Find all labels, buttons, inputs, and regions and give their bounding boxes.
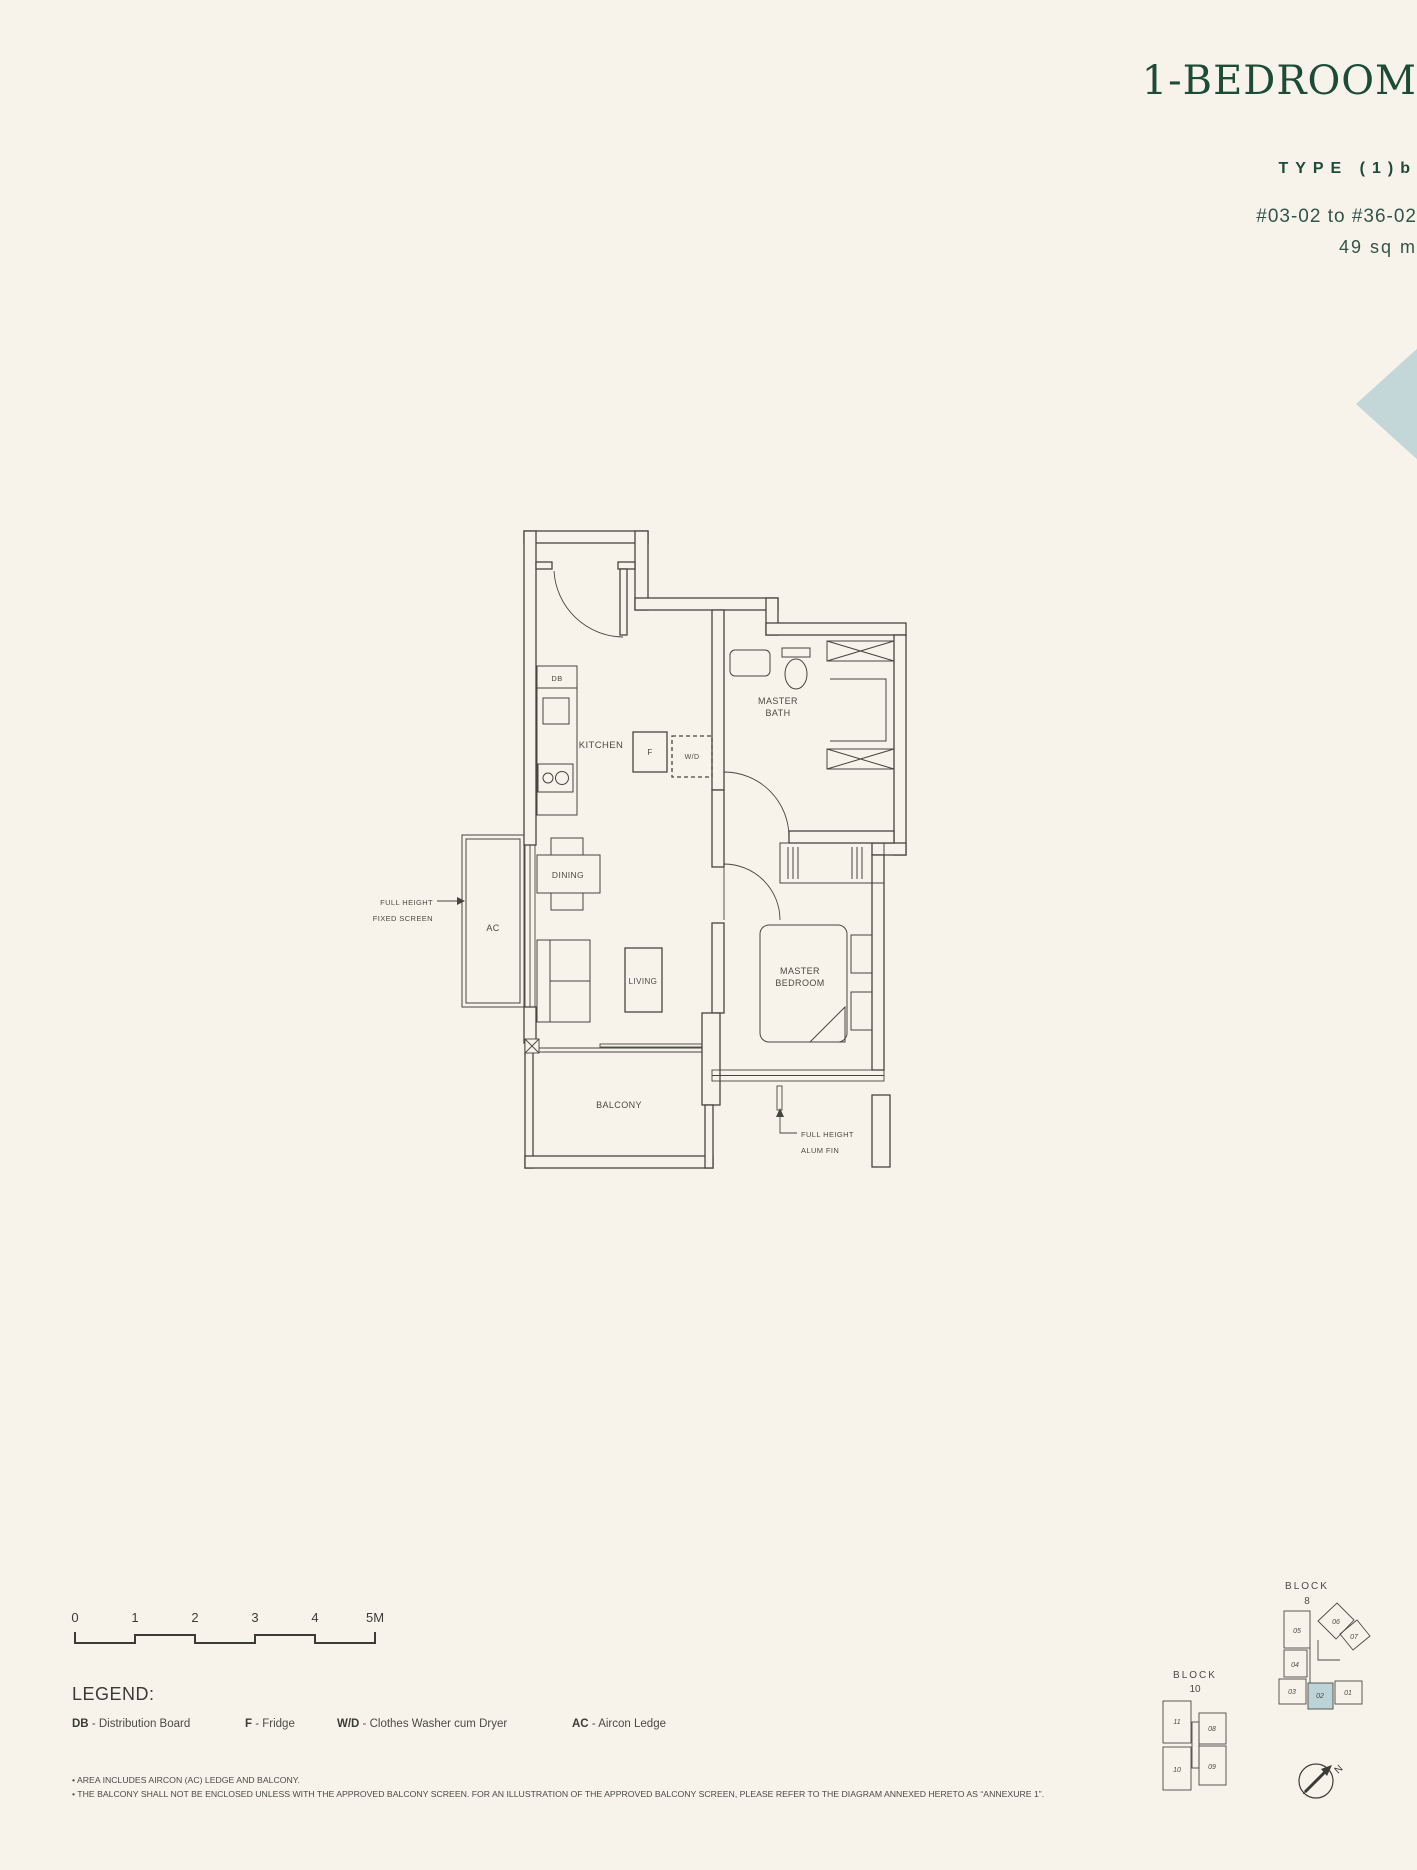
- block8-unit-07: 07: [1350, 1634, 1359, 1641]
- alum-fin: [777, 1086, 782, 1110]
- legend-item-db: DB - Distribution Board: [72, 1718, 190, 1730]
- label-fixed-screen-2: FIXED SCREEN: [373, 914, 433, 923]
- label-dining: DINING: [552, 870, 584, 880]
- block8-unit-06: 06: [1332, 1619, 1340, 1626]
- floor-plan-labels: DB KITCHEN F W/D MASTER BATH DINING AC L…: [373, 674, 854, 1155]
- scale-2: 2: [191, 1610, 198, 1625]
- label-living: LIVING: [629, 977, 658, 986]
- block10-label: BLOCK: [1173, 1670, 1217, 1681]
- north-label: N: [1333, 1763, 1346, 1776]
- label-fixed-screen-1: FULL HEIGHT: [380, 898, 433, 907]
- floorplan-page: 1-BEDROOM TYPE (1)b #03-02 to #36-02 49 …: [0, 0, 1417, 1870]
- legend-heading: LEGEND:: [72, 1684, 155, 1705]
- wardrobe: [780, 843, 884, 883]
- scale-1: 1: [131, 1610, 138, 1625]
- footnote-balcony: • THE BALCONY SHALL NOT BE ENCLOSED UNLE…: [72, 1789, 1044, 1799]
- label-master-bath-1: MASTER: [758, 696, 798, 706]
- sofa: [537, 940, 590, 1022]
- legend-abbr-ac: AC: [572, 1718, 589, 1730]
- legend-abbr-db: DB: [72, 1718, 89, 1730]
- floor-plan: [437, 531, 906, 1168]
- block10-unit-08: 08: [1208, 1726, 1216, 1733]
- master-bath-fixtures: [730, 641, 894, 769]
- block8-unit-03: 03: [1288, 1689, 1296, 1696]
- scale-3: 3: [251, 1610, 258, 1625]
- label-alum-fin-1: FULL HEIGHT: [801, 1130, 854, 1139]
- plan-artwork: DB KITCHEN F W/D MASTER BATH DINING AC L…: [0, 0, 1417, 1870]
- keyplan-block10: BLOCK 10 11 08 09 10: [1163, 1670, 1226, 1790]
- north-arrow-icon: N: [1299, 1763, 1345, 1798]
- legend-abbr-wd: W/D: [337, 1718, 359, 1730]
- label-fridge: F: [647, 748, 652, 757]
- label-ac: AC: [486, 923, 499, 933]
- label-wd: W/D: [685, 754, 700, 761]
- legend-desc-ac: - Aircon Ledge: [589, 1718, 666, 1730]
- legend-desc-wd: - Clothes Washer cum Dryer: [359, 1718, 507, 1730]
- label-balcony: BALCONY: [596, 1100, 642, 1110]
- block10-unit-11: 11: [1173, 1719, 1180, 1726]
- scale-5m: 5M: [366, 1610, 384, 1625]
- footnote-area: • AREA INCLUDES AIRCON (AC) LEDGE AND BA…: [72, 1775, 300, 1785]
- legend-item-wd: W/D - Clothes Washer cum Dryer: [337, 1718, 507, 1730]
- label-db: DB: [551, 674, 562, 683]
- bedroom-window: [712, 1070, 884, 1081]
- alum-fin-leader: [776, 1108, 797, 1133]
- block8-number: 8: [1304, 1596, 1310, 1607]
- block10-unit-10: 10: [1173, 1767, 1181, 1774]
- bath-door: [724, 772, 789, 837]
- entry-door: [536, 562, 635, 637]
- block8-label: BLOCK: [1285, 1581, 1329, 1592]
- legend-desc-fridge: - Fridge: [252, 1718, 295, 1730]
- block10-unit-09: 09: [1208, 1764, 1216, 1771]
- scale-bar: 0 1 2 3 4 5M: [71, 1610, 384, 1643]
- fixed-screen-leader: [437, 897, 465, 905]
- block8-unit-01: 01: [1344, 1690, 1352, 1697]
- scale-0: 0: [71, 1610, 78, 1625]
- block8-unit-02: 02: [1316, 1693, 1324, 1700]
- walls: [524, 531, 906, 1168]
- keyplan-block8: BLOCK 8 05 06 07 04 03 02 01: [1279, 1581, 1370, 1709]
- kitchen-counter: [537, 666, 577, 815]
- dining-window: [525, 845, 535, 1007]
- legend-item-ac: AC - Aircon Ledge: [572, 1718, 666, 1730]
- bedroom-door: [724, 864, 780, 920]
- block8-unit-04: 04: [1291, 1662, 1299, 1669]
- legend-desc-db: - Distribution Board: [89, 1718, 191, 1730]
- legend-item-fridge: F - Fridge: [245, 1718, 295, 1730]
- corner-diamond-decoration: [1356, 346, 1417, 462]
- scale-4: 4: [311, 1610, 318, 1625]
- label-kitchen: KITCHEN: [579, 740, 624, 751]
- label-master-bedroom-2: BEDROOM: [775, 978, 824, 988]
- label-master-bath-2: BATH: [766, 708, 791, 718]
- legend-abbr-fridge: F: [245, 1718, 252, 1730]
- label-master-bedroom-1: MASTER: [780, 966, 820, 976]
- corner-post: [525, 1039, 539, 1053]
- balcony-rail: [539, 1044, 702, 1052]
- block8-unit-05: 05: [1293, 1628, 1301, 1635]
- block10-number: 10: [1189, 1684, 1201, 1695]
- ac-ledge: [462, 835, 524, 1007]
- label-alum-fin-2: ALUM FIN: [801, 1146, 839, 1155]
